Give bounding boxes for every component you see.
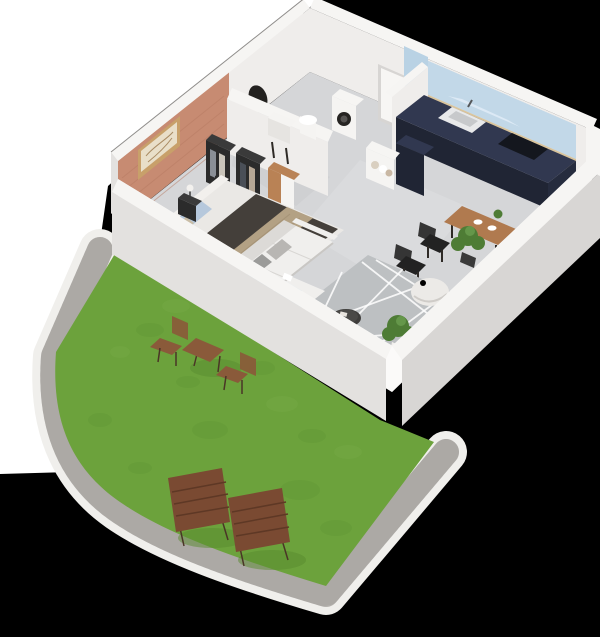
plate <box>488 225 497 230</box>
beanbag-detail <box>420 280 426 286</box>
isometric-scene <box>0 0 600 637</box>
floorplan-render <box>0 0 600 637</box>
east-corner-column <box>586 122 600 176</box>
plate <box>386 170 393 177</box>
plate <box>474 219 483 224</box>
lounger-shadow <box>238 550 306 570</box>
table-lamp <box>187 185 194 192</box>
table-plant <box>494 210 503 219</box>
plate <box>371 161 379 169</box>
